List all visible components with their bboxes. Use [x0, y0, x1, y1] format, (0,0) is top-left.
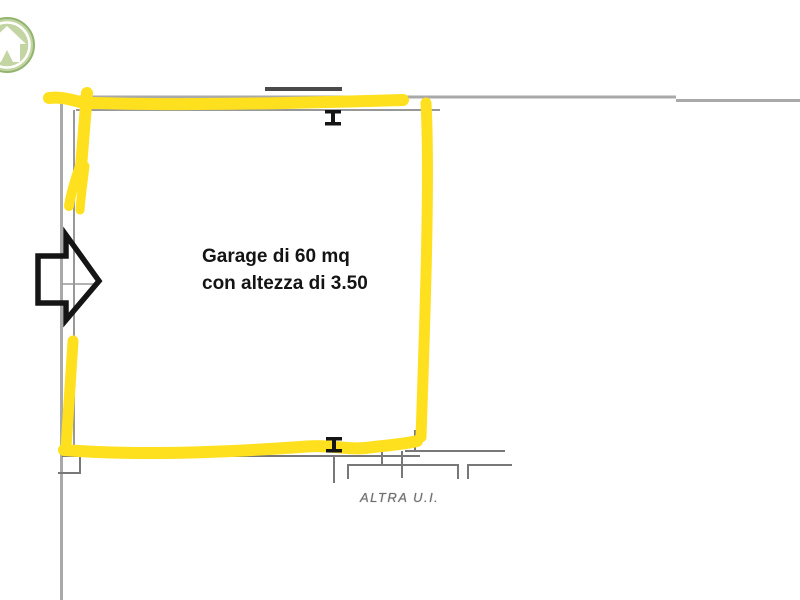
floor-plan-canvas: Garage di 60 mq con altezza di 3.50 ALTR…: [0, 0, 800, 600]
highlight-right-stroke: [421, 103, 427, 437]
garage-annotation: Garage di 60 mq con altezza di 3.50: [202, 243, 368, 297]
floor-plan-drawing: [0, 0, 800, 600]
right-arrow-icon: [38, 235, 99, 320]
highlight-top-stroke: [49, 98, 403, 104]
highlight-left-upper-stroke: [81, 93, 87, 167]
neighbor-unit-label: ALTRA U.I.: [360, 490, 439, 505]
steel-beam-icon-top: [325, 110, 341, 126]
garage-annotation-line1: Garage di 60 mq: [202, 243, 368, 270]
home-logo-icon: [0, 18, 34, 72]
neighbor-room-outline-2: [468, 465, 512, 479]
arrow-outline: [38, 235, 99, 320]
highlight-left-lower-stroke: [66, 341, 73, 448]
highlight-bottom-stroke: [64, 441, 417, 453]
highlight-left-upper-branch-b: [80, 166, 85, 210]
garage-annotation-line2: con altezza di 3.50: [202, 270, 368, 297]
